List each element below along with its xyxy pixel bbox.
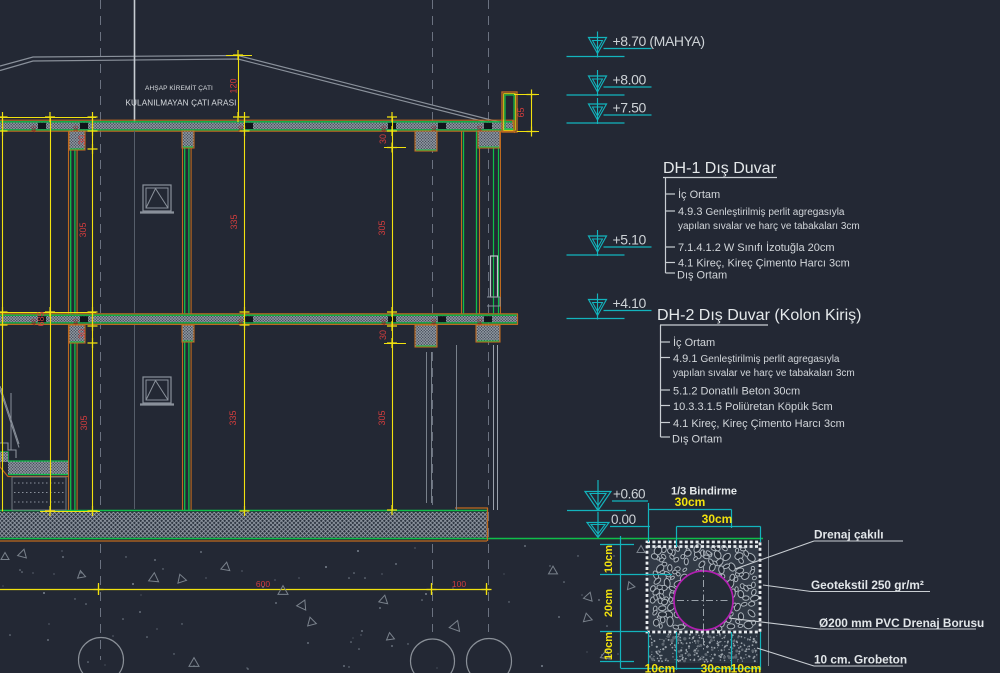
svg-text:40: 40 [477,318,484,326]
svg-text:10cm: 10cm [731,662,762,673]
svg-text:yapılan sıvalar ve harç ve tab: yapılan sıvalar ve harç ve tabakaları 3c… [678,221,860,232]
svg-text:Geotekstil 250 gr/m²: Geotekstil 250 gr/m² [811,578,924,592]
svg-text:İç Ortam: İç Ortam [673,336,715,349]
svg-text:AHŞAP KİREMİT ÇATI: AHŞAP KİREMİT ÇATI [145,83,213,92]
svg-text:0.00: 0.00 [611,512,636,527]
svg-text:İç Ortam: İç Ortam [678,188,720,201]
svg-text:305: 305 [79,415,89,430]
svg-text:+8.00: +8.00 [613,72,647,88]
svg-text:20cm: 20cm [603,589,615,617]
svg-text:DH-2 Dış Duvar (Kolon Kiriş): DH-2 Dış Duvar (Kolon Kiriş) [657,307,861,324]
svg-text:1/3 Bindirme: 1/3 Bindirme [671,486,737,498]
svg-text:30: 30 [378,134,388,144]
svg-text:30: 30 [378,330,388,340]
svg-text:305: 305 [377,220,387,235]
svg-text:335: 335 [228,410,238,425]
svg-text:Dış Ortam: Dış Ortam [672,434,722,446]
svg-text:40: 40 [381,125,388,133]
svg-text:30cm: 30cm [701,662,732,673]
svg-text:305: 305 [78,222,88,237]
svg-text:7.1.4.1.2 W Sınıfı İzotuğla 20: 7.1.4.1.2 W Sınıfı İzotuğla 20cm [678,241,835,254]
svg-text:30cm: 30cm [702,512,733,526]
svg-text:Drenaj çakılı: Drenaj çakılı [814,528,884,542]
svg-text:DH-1 Dış Duvar: DH-1 Dış Duvar [663,160,777,177]
svg-text:4.1 Kireç, Kireç Çimento Harcı: 4.1 Kireç, Kireç Çimento Harcı 3cm [678,258,850,270]
svg-text:KULANILMAYAN ÇATI ARASI: KULANILMAYAN ÇATI ARASI [125,99,236,108]
svg-text:Ø200 mm PVC Drenaj Borusu: Ø200 mm PVC Drenaj Borusu [819,616,984,630]
svg-text:4.9.1 Genleştirilmiş perlit ag: 4.9.1 Genleştirilmiş perlit agregasıyla [673,353,840,365]
svg-text:10 cm. Grobeton: 10 cm. Grobeton [814,653,907,667]
svg-text:65: 65 [516,107,526,117]
svg-text:40: 40 [31,125,38,133]
svg-text:4.1 Kireç, Kireç Çimento Harcı: 4.1 Kireç, Kireç Çimento Harcı 3cm [673,418,845,430]
svg-text:30: 30 [77,329,87,339]
svg-text:10.3.3.1.5 Poliüretan Köpük 5c: 10.3.3.1.5 Poliüretan Köpük 5cm [673,401,833,413]
svg-text:10cm: 10cm [645,662,676,673]
svg-text:yapılan sıvalar ve harç ve tab: yapılan sıvalar ve harç ve tabakaları 3c… [673,368,855,379]
svg-text:40: 40 [381,318,388,326]
svg-text:5.1.2 Donatılı Beton 30cm: 5.1.2 Donatılı Beton 30cm [673,386,800,398]
svg-text:+5.10: +5.10 [613,232,647,248]
svg-text:335: 335 [229,214,239,229]
svg-text:+4.10: +4.10 [613,295,647,311]
svg-text:4.9.3 Genleştirilmiş perlit ag: 4.9.3 Genleştirilmiş perlit agregasıyla [678,206,845,218]
svg-text:120: 120 [229,78,239,93]
svg-text:+7.50: +7.50 [613,100,647,116]
svg-text:685: 685 [36,311,46,326]
svg-text:+8.70 (MAHYA): +8.70 (MAHYA) [613,33,705,49]
svg-text:305: 305 [377,410,387,425]
svg-text:+0.60: +0.60 [613,487,645,502]
svg-text:40: 40 [431,318,438,326]
svg-text:30: 30 [77,135,87,145]
svg-text:10cm: 10cm [603,632,615,660]
svg-text:10cm: 10cm [603,545,615,573]
svg-text:100: 100 [452,579,466,589]
svg-text:Dış Ortam: Dış Ortam [677,270,727,282]
svg-text:40: 40 [73,318,80,326]
